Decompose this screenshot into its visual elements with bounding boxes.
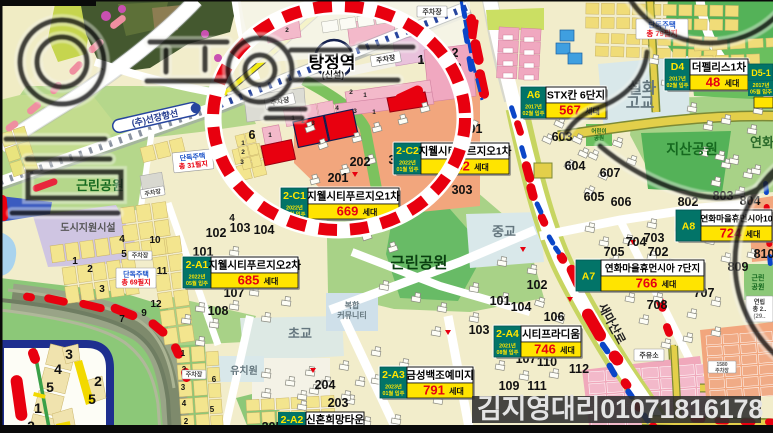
svg-text:02월 입주: 02월 입주 bbox=[523, 109, 545, 117]
svg-text:101: 101 bbox=[490, 294, 511, 308]
svg-text:4: 4 bbox=[119, 234, 125, 245]
svg-text:지산공원: 지산공원 bbox=[666, 141, 718, 157]
svg-text:연화마을휴먼시아 7단지: 연화마을휴먼시아 7단지 bbox=[605, 263, 700, 275]
svg-text:2022년: 2022년 bbox=[189, 273, 206, 281]
svg-text:12: 12 bbox=[150, 299, 162, 310]
svg-text:단독주택: 단독주택 bbox=[123, 270, 149, 279]
svg-text:11: 11 bbox=[157, 266, 168, 277]
svg-text:10: 10 bbox=[149, 235, 161, 246]
svg-text:주차장: 주차장 bbox=[715, 367, 729, 374]
svg-text:세대: 세대 bbox=[662, 279, 677, 289]
svg-text:1: 1 bbox=[420, 58, 424, 65]
svg-text:공원: 공원 bbox=[752, 282, 765, 291]
svg-text:106: 106 bbox=[544, 310, 565, 324]
svg-text:2-A4: 2-A4 bbox=[496, 328, 519, 340]
svg-text:2-A3: 2-A3 bbox=[382, 369, 405, 381]
svg-text:세대: 세대 bbox=[264, 276, 279, 286]
svg-text:2: 2 bbox=[285, 27, 289, 34]
svg-text:세대: 세대 bbox=[746, 229, 761, 239]
svg-text:김지영대리01071816178: 김지영대리01071816178 bbox=[477, 394, 763, 424]
svg-text:3: 3 bbox=[311, 120, 315, 127]
svg-text:주유소: 주유소 bbox=[639, 351, 659, 360]
svg-text:203: 203 bbox=[328, 396, 349, 410]
svg-text:2017년: 2017년 bbox=[525, 103, 542, 111]
svg-text:2-C1: 2-C1 bbox=[283, 190, 306, 202]
svg-text:A8: A8 bbox=[682, 221, 696, 233]
svg-text:604: 604 bbox=[565, 159, 586, 173]
svg-text:2-C2: 2-C2 bbox=[396, 145, 419, 157]
svg-text:고교: 고교 bbox=[626, 95, 655, 112]
svg-text:2: 2 bbox=[241, 149, 245, 156]
svg-text:세대: 세대 bbox=[725, 78, 740, 88]
svg-text:2: 2 bbox=[184, 417, 189, 426]
svg-text:9: 9 bbox=[141, 308, 147, 319]
svg-text:48: 48 bbox=[706, 75, 720, 90]
svg-text:02월 입주: 02월 입주 bbox=[667, 81, 689, 89]
svg-text:705: 705 bbox=[604, 245, 625, 259]
svg-text:01월 입주: 01월 입주 bbox=[397, 165, 419, 173]
svg-text:1: 1 bbox=[34, 400, 42, 416]
svg-text:109: 109 bbox=[499, 379, 520, 393]
svg-text:더펠리스1차: 더펠리스1차 bbox=[692, 61, 746, 74]
svg-text:복합: 복합 bbox=[345, 300, 360, 310]
svg-text:4: 4 bbox=[335, 105, 339, 112]
svg-text:605: 605 bbox=[584, 190, 605, 204]
svg-text:2022년: 2022년 bbox=[286, 204, 303, 212]
svg-text:01월 입주: 01월 입주 bbox=[383, 389, 405, 397]
svg-text:3: 3 bbox=[353, 108, 357, 115]
svg-text:중교: 중교 bbox=[492, 224, 516, 239]
svg-text:2-A1: 2-A1 bbox=[186, 259, 209, 271]
svg-text:08월 입주: 08월 입주 bbox=[497, 348, 519, 356]
svg-text:103: 103 bbox=[469, 323, 490, 337]
svg-text:유치원: 유치원 bbox=[230, 364, 258, 377]
svg-text:1: 1 bbox=[363, 92, 367, 99]
svg-text:112: 112 bbox=[569, 362, 589, 376]
svg-text:3: 3 bbox=[65, 346, 73, 362]
svg-text:지웰시티푸르지오1차: 지웰시티푸르지오1차 bbox=[307, 190, 400, 203]
svg-text:5: 5 bbox=[88, 391, 96, 407]
svg-text:703: 703 bbox=[644, 231, 665, 245]
svg-text:1: 1 bbox=[181, 349, 186, 358]
svg-text:근린: 근린 bbox=[752, 273, 765, 282]
svg-text:연화: 연화 bbox=[750, 135, 773, 150]
svg-text:7: 7 bbox=[119, 314, 125, 325]
svg-text:708: 708 bbox=[647, 298, 668, 312]
svg-text:금성백조예미지: 금성백조예미지 bbox=[406, 369, 474, 382]
svg-text:204: 204 bbox=[315, 378, 336, 392]
svg-text:2017년: 2017년 bbox=[753, 81, 770, 89]
svg-text:111: 111 bbox=[527, 379, 547, 393]
svg-text:102: 102 bbox=[527, 278, 548, 292]
svg-text:702: 702 bbox=[648, 245, 669, 259]
svg-text:606: 606 bbox=[611, 195, 632, 209]
svg-text:주차장: 주차장 bbox=[186, 371, 203, 379]
svg-text:201: 201 bbox=[328, 171, 349, 185]
svg-text:어린이: 어린이 bbox=[591, 127, 606, 135]
svg-text:세대: 세대 bbox=[474, 162, 489, 172]
svg-text:총 2..: 총 2.. bbox=[753, 305, 767, 313]
svg-text:4: 4 bbox=[54, 361, 62, 377]
svg-text:05월 입주: 05월 입주 bbox=[750, 88, 772, 96]
svg-text:2023년: 2023년 bbox=[385, 383, 402, 391]
svg-text:신혼희망타운: 신혼희망타운 bbox=[306, 413, 364, 426]
svg-text:2-A2: 2-A2 bbox=[281, 414, 304, 426]
svg-text:D5-1: D5-1 bbox=[751, 68, 771, 78]
svg-text:108: 108 bbox=[208, 304, 229, 318]
svg-text:1: 1 bbox=[241, 140, 245, 147]
svg-text:2022년: 2022년 bbox=[399, 159, 416, 167]
svg-text:근린공원: 근린공원 bbox=[390, 254, 447, 272]
svg-text:STX칸 6단지: STX칸 6단지 bbox=[547, 89, 605, 102]
svg-text:102: 102 bbox=[206, 226, 227, 240]
svg-text:2017년: 2017년 bbox=[669, 75, 686, 83]
svg-text:3: 3 bbox=[240, 159, 244, 166]
svg-text:104: 104 bbox=[254, 223, 275, 237]
svg-text:1: 1 bbox=[372, 109, 376, 116]
svg-text:세대: 세대 bbox=[363, 207, 378, 217]
svg-text:766: 766 bbox=[636, 276, 658, 291]
svg-text:704: 704 bbox=[626, 235, 647, 249]
svg-text:202: 202 bbox=[350, 155, 371, 169]
svg-text:세대: 세대 bbox=[560, 345, 575, 355]
svg-text:746: 746 bbox=[534, 342, 556, 357]
svg-text:3: 3 bbox=[99, 284, 105, 295]
svg-text:4: 4 bbox=[229, 213, 235, 224]
svg-text:주차장: 주차장 bbox=[422, 7, 442, 16]
svg-text:2: 2 bbox=[87, 264, 93, 275]
svg-text:커뮤니티: 커뮤니티 bbox=[337, 310, 366, 320]
svg-text:5: 5 bbox=[121, 249, 127, 260]
svg-text:D4: D4 bbox=[671, 61, 685, 73]
svg-text:3: 3 bbox=[181, 383, 186, 392]
svg-text:4: 4 bbox=[182, 399, 187, 408]
svg-text:5: 5 bbox=[46, 379, 54, 395]
svg-text:5: 5 bbox=[210, 405, 215, 414]
svg-text:6: 6 bbox=[212, 375, 217, 384]
svg-text:607: 607 bbox=[600, 166, 621, 180]
svg-text:세대: 세대 bbox=[449, 386, 464, 396]
svg-text:669: 669 bbox=[337, 204, 359, 219]
svg-text:685: 685 bbox=[238, 273, 260, 288]
svg-text:303: 303 bbox=[452, 183, 473, 197]
svg-text:도시지원시설: 도시지원시설 bbox=[60, 221, 115, 234]
svg-text:초교: 초교 bbox=[288, 326, 312, 341]
svg-text:지웰시티푸르지오2차: 지웰시티푸르지오2차 bbox=[208, 259, 301, 272]
svg-text:시티프라디움: 시티프라디움 bbox=[522, 328, 580, 341]
svg-text:총 69필지: 총 69필지 bbox=[121, 278, 150, 287]
svg-text:연립: 연립 bbox=[754, 298, 765, 306]
svg-text:6: 6 bbox=[249, 128, 256, 142]
svg-text:104: 104 bbox=[511, 300, 532, 314]
svg-text:2021년: 2021년 bbox=[499, 342, 516, 350]
svg-text:1: 1 bbox=[268, 132, 272, 139]
svg-text:A6: A6 bbox=[527, 89, 541, 101]
svg-text:2: 2 bbox=[94, 373, 102, 389]
svg-text:A7: A7 bbox=[582, 271, 596, 283]
svg-text:810: 810 bbox=[754, 247, 773, 261]
svg-text:05월 입주: 05월 입주 bbox=[186, 279, 208, 287]
svg-text:2: 2 bbox=[349, 89, 353, 96]
svg-text:주차장: 주차장 bbox=[132, 252, 149, 260]
svg-text:791: 791 bbox=[423, 383, 445, 398]
svg-text:1: 1 bbox=[72, 256, 78, 267]
